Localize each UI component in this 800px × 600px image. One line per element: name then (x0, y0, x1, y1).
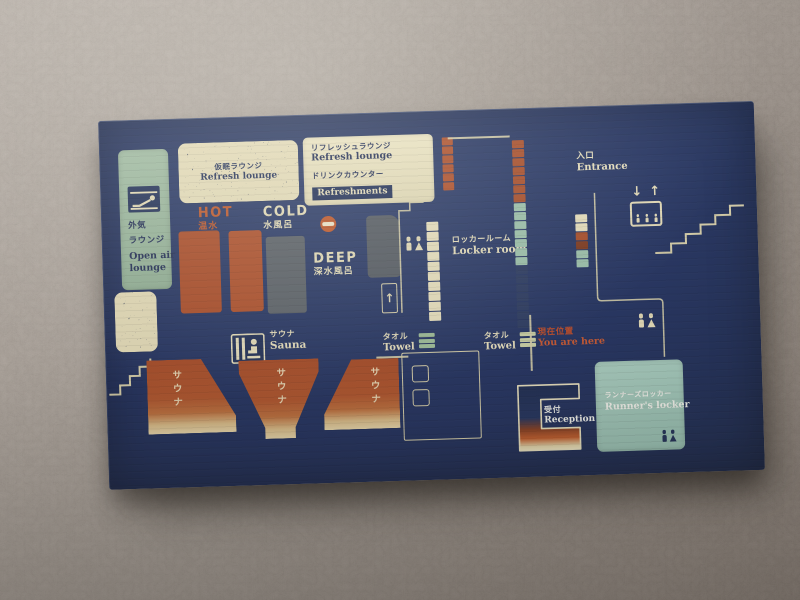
down-arrow-glyph: ↓ (631, 185, 642, 198)
towel-station-mid: タオル Towel (383, 331, 435, 354)
woman-icon (415, 236, 422, 250)
nap-lounge-label-en: Refresh lounge (200, 170, 277, 183)
wall-line-top (448, 135, 510, 138)
wash-stall-1 (412, 365, 430, 383)
towel-right-en: Towel (484, 341, 516, 353)
open-air-lounge-label-en1: Open air (129, 251, 175, 263)
sauna-room-text: サウナ (369, 367, 380, 408)
runners-locker-area: ランナーズロッカー Runner's locker (595, 359, 686, 452)
towel-stack-icon (418, 333, 434, 348)
sauna-label: サウナ Sauna (269, 329, 306, 353)
sauna-room-left: サウナ (146, 358, 236, 435)
drink-counter-jp: ドリンクカウンター (312, 168, 426, 181)
hot-label-en: HOT (198, 205, 234, 220)
refresh-lounge-en: Refresh lounge (311, 150, 425, 164)
sauna-room-text: サウナ (275, 367, 286, 408)
woman-icon (669, 430, 675, 442)
restroom-icon (661, 430, 676, 442)
nap-lounge-area: 仮眠ラウンジ Refresh lounge (178, 140, 300, 204)
refresh-lounge-info-box: リフレッシュラウンジ Refresh lounge ドリンクカウンター Refr… (303, 134, 435, 206)
deep-label-jp: 深水風呂 (314, 267, 358, 277)
washing-area-outline (401, 350, 482, 440)
facility-map-board: 外気 ラウンジ Open air lounge (98, 101, 765, 490)
sauna-room-right: サウナ (322, 358, 400, 430)
reception-area: 受付 Reception (515, 381, 583, 453)
sauna-room-middle: サウナ (238, 358, 320, 439)
man-icon (637, 313, 644, 327)
cold-label-en: COLD (263, 204, 309, 219)
runners-locker-en: Runner's locker (605, 400, 690, 414)
cold-bath-label: COLD 水風呂 (263, 205, 309, 231)
refreshments-label: Refreshments (312, 185, 393, 200)
reception-en: Reception (544, 414, 595, 426)
deep-label-en: DEEP (313, 251, 358, 266)
entry-locker-strip (575, 214, 589, 267)
deep-bath-label: DEEP 深水風呂 (313, 251, 358, 277)
person-icon (644, 214, 648, 223)
open-air-lounge-area: 外気 ラウンジ Open air lounge (118, 149, 172, 290)
man-icon (661, 430, 667, 442)
open-air-lounge-label-jp1: 外気 (128, 221, 146, 233)
cold-label-jp: 水風呂 (263, 221, 309, 231)
open-air-lounge-label-en2: lounge (129, 263, 166, 275)
stairs-up-arrow-icon: ↑ (381, 283, 398, 313)
hot-bath-pool-2 (228, 230, 263, 312)
wash-stall-2 (412, 389, 430, 407)
towel-stack-icon (519, 332, 535, 347)
counter-seat-strip (442, 137, 455, 190)
reception-label: 受付 Reception (544, 404, 595, 426)
photo-of-wall-mounted-map: 外気 ラウンジ Open air lounge (0, 0, 800, 600)
locker-wall-strip (426, 222, 441, 321)
water-station-icon (320, 216, 336, 232)
woman-icon (647, 313, 654, 327)
cold-bath-pool (266, 236, 307, 314)
sauna-person-icon (231, 333, 266, 364)
sauna-en: Sauna (270, 339, 307, 352)
restroom-icon (405, 236, 422, 251)
sauna-room-text: サウナ (171, 370, 182, 411)
bath-area-wall-line (396, 198, 432, 317)
towel-station-right: タオル Towel (484, 330, 536, 353)
hot-bath-label: HOT 温水 (198, 206, 234, 232)
hot-bath-pool-1 (178, 230, 221, 313)
person-icon (635, 214, 639, 223)
dither-block (114, 291, 158, 352)
open-air-lounge-label-jp2: ラウンジ (129, 235, 165, 247)
locker-column-strip (512, 140, 530, 328)
entrance-en: Entrance (576, 161, 627, 174)
man-icon (405, 236, 412, 250)
restroom-icon (637, 313, 654, 328)
stairs-icon (652, 194, 748, 257)
entrance-label: 入口 Entrance (576, 150, 628, 174)
up-arrow-glyph: ↑ (384, 292, 394, 304)
lounging-person-icon (127, 185, 161, 213)
